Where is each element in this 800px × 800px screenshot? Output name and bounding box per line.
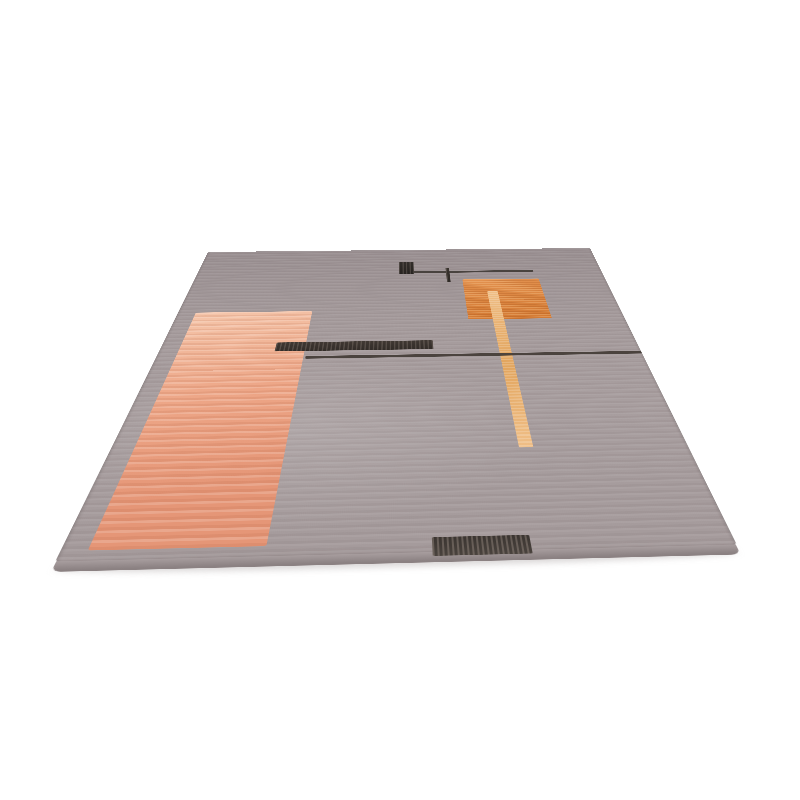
dark-square	[399, 262, 414, 274]
mid-thick-bar	[274, 340, 433, 351]
mid-long-line	[305, 351, 642, 359]
top-rule-line	[413, 270, 534, 273]
orange-block	[462, 279, 552, 320]
rug-image	[55, 248, 737, 562]
product-photo-canvas	[0, 0, 800, 800]
front-dark-patch	[432, 535, 532, 556]
